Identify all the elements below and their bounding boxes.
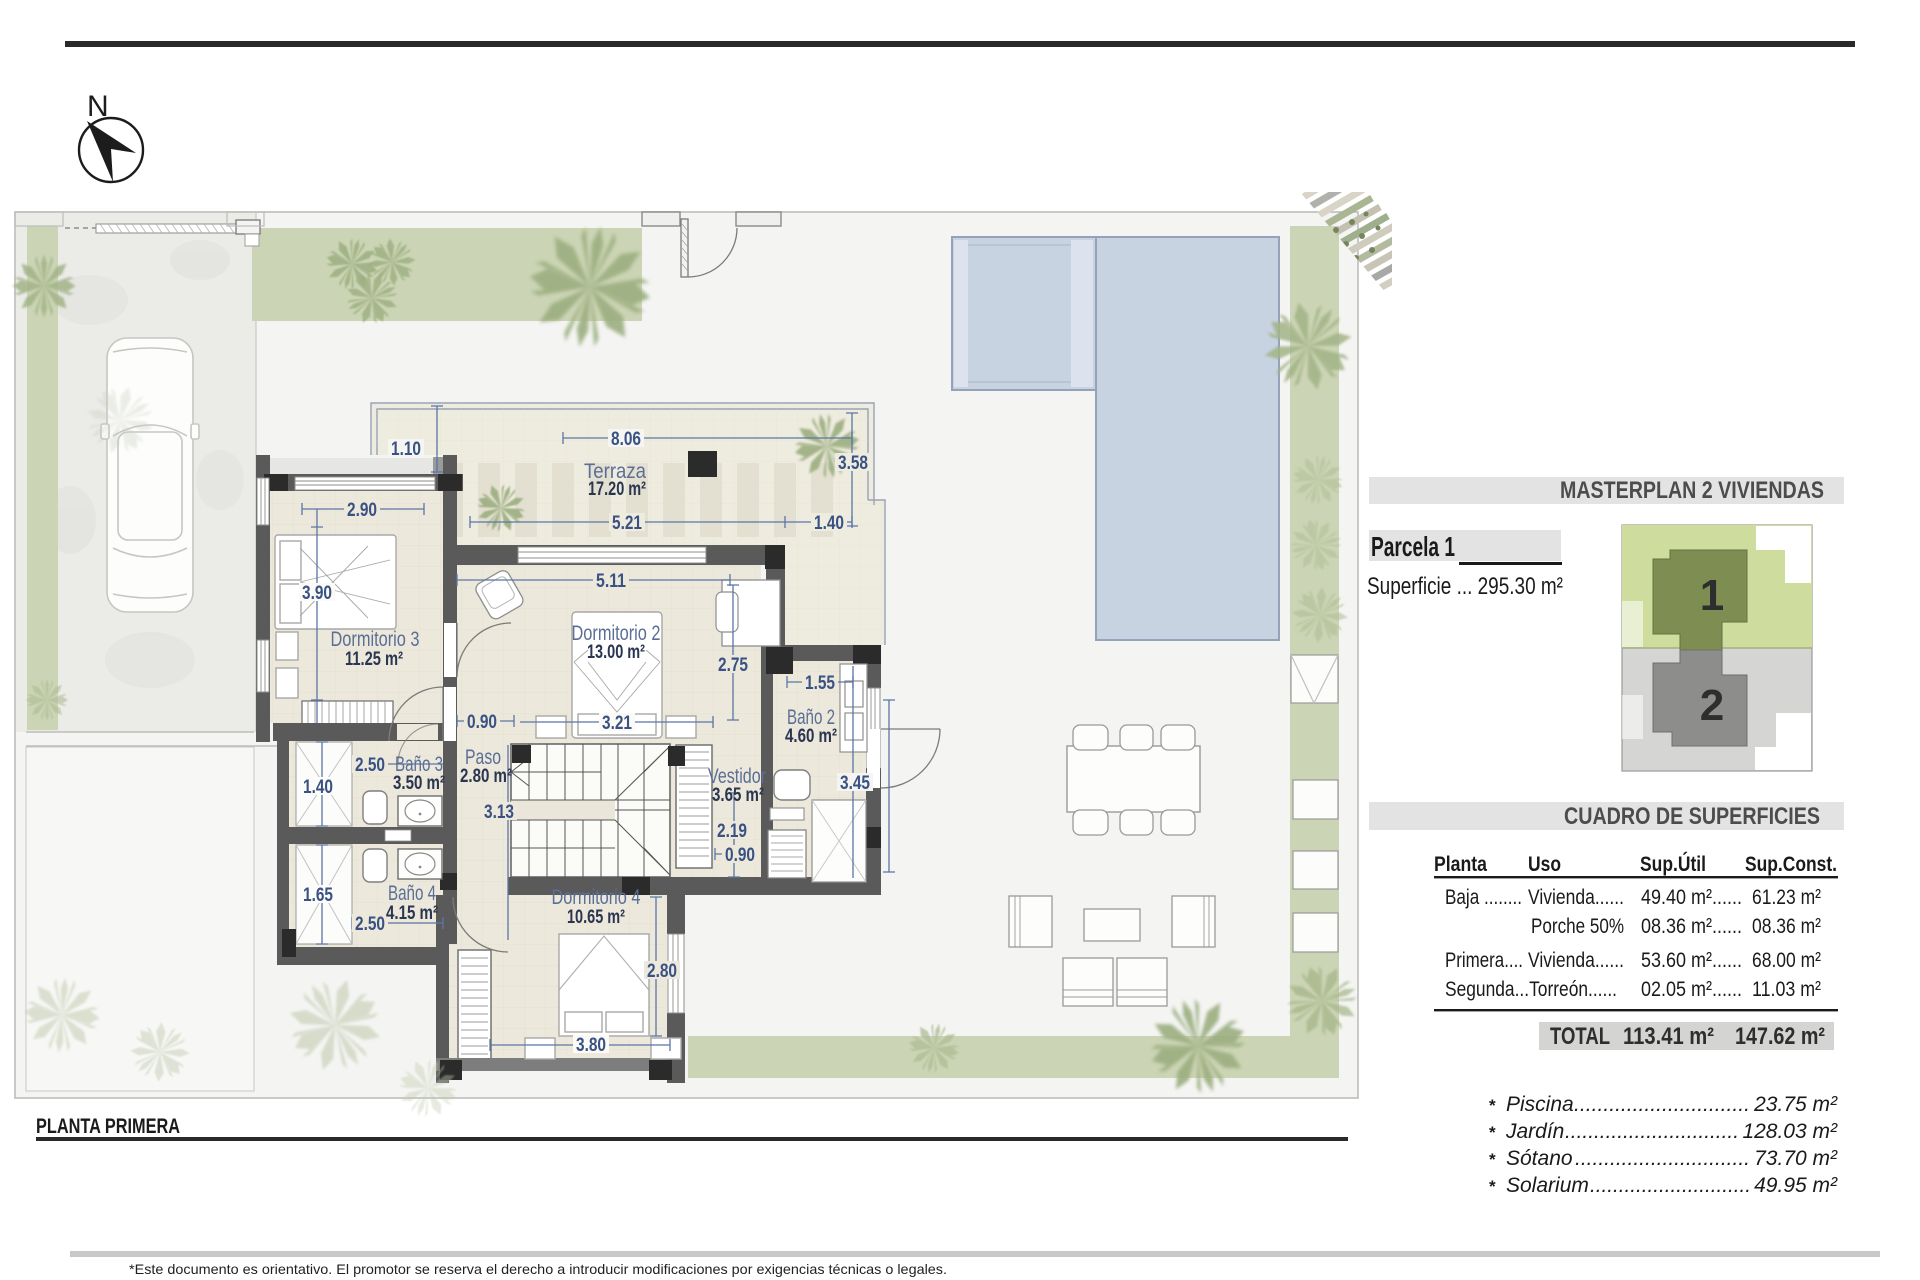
svg-text:Uso: Uso xyxy=(1528,853,1561,876)
svg-text:128.03 m²: 128.03 m² xyxy=(1742,1120,1838,1143)
svg-text:2.19: 2.19 xyxy=(717,821,747,842)
svg-text:3.65 m²: 3.65 m² xyxy=(712,785,764,806)
svg-text:73.70 m²: 73.70 m² xyxy=(1754,1147,1838,1170)
svg-text:Segunda...Torreón......: Segunda...Torreón...... xyxy=(1445,978,1617,1001)
svg-text:Porche 50%: Porche 50% xyxy=(1531,915,1624,938)
svg-text:61.23 m²: 61.23 m² xyxy=(1752,886,1821,909)
svg-text:2: 2 xyxy=(1700,681,1724,730)
svg-text:..............................: .............................. xyxy=(1565,1120,1739,1143)
svg-text:Vivienda......: Vivienda...... xyxy=(1528,949,1624,972)
svg-text:Parcela 1: Parcela 1 xyxy=(1371,531,1455,562)
svg-text:Baja ........: Baja ........ xyxy=(1445,886,1522,909)
svg-text:2.90: 2.90 xyxy=(347,500,377,521)
svg-text:10.65 m²: 10.65 m² xyxy=(567,907,625,928)
svg-text:Solarium: Solarium xyxy=(1506,1174,1589,1197)
svg-text:3.45: 3.45 xyxy=(840,773,870,794)
svg-text:3.21: 3.21 xyxy=(602,713,632,734)
svg-text:1: 1 xyxy=(1700,571,1724,620)
svg-text:Primera....: Primera.... xyxy=(1445,949,1523,972)
svg-text:Sup.Útil: Sup.Útil xyxy=(1640,852,1706,876)
svg-text:4.60 m²: 4.60 m² xyxy=(785,726,837,747)
svg-text:Dormitorio 4: Dormitorio 4 xyxy=(552,886,641,909)
svg-text:3.50 m²: 3.50 m² xyxy=(393,773,445,794)
svg-text:Baño 4: Baño 4 xyxy=(388,882,436,905)
svg-text:*: * xyxy=(1489,1150,1496,1169)
svg-text:17.20 m²: 17.20 m² xyxy=(588,479,646,500)
svg-text:............................: ............................ xyxy=(1590,1174,1751,1197)
svg-text:2.50: 2.50 xyxy=(355,755,385,776)
svg-text:49.95 m²: 49.95 m² xyxy=(1754,1174,1838,1197)
svg-text:*: * xyxy=(1489,1123,1496,1142)
svg-text:..............................: .............................. xyxy=(1575,1147,1750,1170)
svg-text:11.25 m²: 11.25 m² xyxy=(345,649,403,670)
svg-text:1.10: 1.10 xyxy=(391,439,421,460)
svg-text:4.15 m²: 4.15 m² xyxy=(386,903,438,924)
svg-text:08.36 m²......: 08.36 m²...... xyxy=(1641,915,1742,938)
svg-text:Jardín: Jardín xyxy=(1505,1120,1564,1143)
svg-text:*: * xyxy=(1489,1096,1496,1115)
svg-text:3.80: 3.80 xyxy=(576,1035,606,1056)
svg-text:53.60 m²......: 53.60 m²...... xyxy=(1641,949,1742,972)
svg-text:68.00 m²: 68.00 m² xyxy=(1752,949,1821,972)
svg-text:23.75 m²: 23.75 m² xyxy=(1753,1093,1838,1116)
svg-text:1.55: 1.55 xyxy=(805,673,835,694)
svg-text:147.62 m²: 147.62 m² xyxy=(1735,1023,1825,1050)
svg-text:*Este documento es orientativo: *Este documento es orientativo. El promo… xyxy=(129,1261,947,1277)
svg-text:1.40: 1.40 xyxy=(303,777,333,798)
svg-text:Dormitorio 3: Dormitorio 3 xyxy=(331,628,420,651)
svg-text:8.06: 8.06 xyxy=(611,429,641,450)
svg-text:0.90: 0.90 xyxy=(467,712,497,733)
svg-text:2.80 m²: 2.80 m² xyxy=(460,766,512,787)
svg-text:1.40: 1.40 xyxy=(814,513,844,534)
svg-text:3.90: 3.90 xyxy=(302,583,332,604)
svg-text:08.36 m²: 08.36 m² xyxy=(1752,915,1821,938)
svg-text:5.11: 5.11 xyxy=(596,571,626,592)
svg-text:Planta: Planta xyxy=(1434,853,1487,876)
svg-text:Sup.Const.: Sup.Const. xyxy=(1745,853,1837,876)
svg-text:*: * xyxy=(1489,1177,1496,1196)
svg-text:2.75: 2.75 xyxy=(718,655,748,676)
svg-text:MASTERPLAN 2 VIVIENDAS: MASTERPLAN 2 VIVIENDAS xyxy=(1560,477,1824,504)
svg-text:13.00 m²: 13.00 m² xyxy=(587,642,645,663)
svg-text:0.90: 0.90 xyxy=(725,845,755,866)
svg-text:Sótano: Sótano xyxy=(1506,1147,1573,1170)
svg-text:Superficie ... 295.30 m²: Superficie ... 295.30 m² xyxy=(1367,573,1563,600)
svg-text:2.80: 2.80 xyxy=(647,961,677,982)
svg-text:Vivienda......: Vivienda...... xyxy=(1528,886,1624,909)
svg-text:11.03 m²: 11.03 m² xyxy=(1752,978,1821,1001)
svg-text:TOTAL: TOTAL xyxy=(1550,1023,1610,1050)
svg-text:49.40 m²......: 49.40 m²...... xyxy=(1641,886,1742,909)
svg-text:2.50: 2.50 xyxy=(355,914,385,935)
svg-text:3.58: 3.58 xyxy=(838,453,868,474)
svg-text:..............................: .............................. xyxy=(1574,1093,1750,1116)
svg-text:1.65: 1.65 xyxy=(303,885,333,906)
svg-text:5.21: 5.21 xyxy=(612,513,642,534)
svg-text:3.13: 3.13 xyxy=(484,802,514,823)
svg-text:Piscina: Piscina xyxy=(1506,1093,1574,1116)
svg-text:113.41 m²: 113.41 m² xyxy=(1623,1023,1714,1050)
svg-text:PLANTA PRIMERA: PLANTA PRIMERA xyxy=(36,1115,180,1138)
svg-text:CUADRO DE SUPERFICIES: CUADRO DE SUPERFICIES xyxy=(1564,803,1820,830)
svg-text:02.05 m²......: 02.05 m²...... xyxy=(1641,978,1742,1001)
